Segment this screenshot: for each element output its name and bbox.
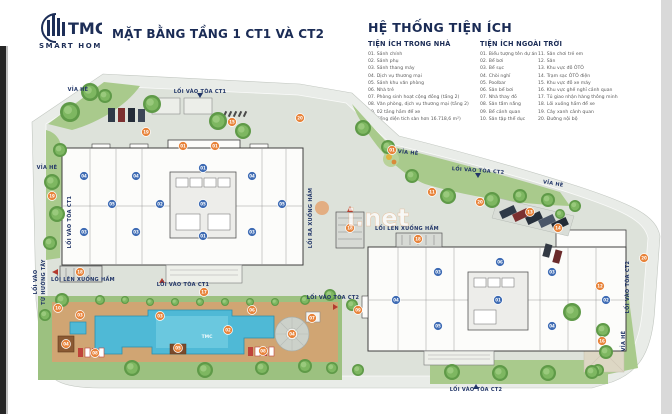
marker-number: 02	[603, 298, 609, 303]
marker-number: 09	[355, 308, 361, 313]
marker-number: 01	[200, 234, 206, 239]
marker-number: 20	[477, 200, 483, 205]
watermark-text: i.net	[347, 204, 409, 232]
tree	[555, 209, 565, 219]
tree	[298, 359, 312, 373]
plan-label: LỐI VÀO TÒA CT2	[307, 293, 360, 301]
marker-number: 08	[92, 351, 98, 356]
marker-number: 04	[63, 342, 69, 347]
marker-number: 20	[641, 256, 647, 261]
marker-number: 17	[201, 290, 207, 295]
plan-label: TỪ HƯỚNG TÂY	[40, 259, 47, 305]
tree	[146, 298, 154, 306]
marker-number: 05	[279, 202, 285, 207]
tree	[563, 303, 581, 321]
marker-number: 04	[133, 174, 139, 179]
plan-label: LỐI VÀO TÒA CT1	[174, 87, 227, 95]
marker-number: 04	[393, 298, 399, 303]
marker-number: 03	[77, 313, 83, 318]
plan-label: VỈA HÈ	[619, 330, 627, 351]
marker-number: 15	[229, 120, 235, 125]
tree	[585, 365, 599, 379]
tree	[197, 362, 213, 378]
tree	[444, 364, 460, 380]
marker-number: 04	[289, 332, 295, 337]
tree	[49, 206, 65, 222]
pool-shallow	[156, 316, 228, 348]
tree	[246, 298, 254, 306]
tree	[43, 236, 57, 250]
marker-number: 01	[389, 148, 395, 153]
plan-label: LỐI VÀO	[31, 270, 39, 295]
tree	[352, 364, 364, 376]
tree	[513, 189, 527, 203]
tree	[541, 193, 555, 207]
tree	[171, 298, 179, 306]
marker-number: 04	[549, 324, 555, 329]
marker-number: 03	[549, 270, 555, 275]
marker-number: 08	[260, 349, 266, 354]
tree	[124, 360, 140, 376]
tree	[221, 298, 229, 306]
tree	[98, 89, 112, 103]
marker-number: 11	[429, 190, 435, 195]
tree	[599, 345, 613, 359]
marker-number: 03	[81, 230, 87, 235]
marker-number: 01	[495, 298, 501, 303]
tree	[143, 95, 161, 113]
marker-number: 05	[435, 324, 441, 329]
tree	[196, 298, 204, 306]
building-ct1	[62, 140, 303, 283]
pool-logo-text: TMC	[202, 334, 214, 340]
tree	[492, 365, 508, 381]
marker-number: 03	[435, 270, 441, 275]
marker-number: 05	[109, 202, 115, 207]
plan-label: LỐI VÀO TÒA CT1	[65, 195, 73, 248]
marker-number: 02	[225, 328, 231, 333]
tree	[326, 362, 338, 374]
plan-label: LỐI VÀO TÒA CT1	[157, 280, 210, 288]
marker-number: 04	[81, 174, 87, 179]
tree	[60, 102, 80, 122]
marker-number: 05	[175, 346, 181, 351]
flowers	[386, 154, 392, 160]
tree	[39, 309, 51, 321]
marker-number: 13	[527, 210, 533, 215]
plan-label: VỈA HÈ	[68, 85, 89, 93]
marker-number: 12	[597, 284, 603, 289]
tree	[484, 192, 500, 208]
plan-label: VỈA HÈ	[37, 163, 58, 171]
marker-number: 01	[200, 166, 206, 171]
marker-number: 07	[309, 316, 315, 321]
tree	[405, 169, 419, 183]
tree	[44, 174, 60, 190]
tree	[121, 296, 129, 304]
marker-number: 01	[180, 144, 186, 149]
ct2-entrance-plaza	[424, 351, 494, 365]
marker-number: 20	[297, 116, 303, 121]
marker-number: 04	[249, 174, 255, 179]
tree	[569, 200, 581, 212]
marker-number: 18	[77, 270, 83, 275]
marker-number: 05	[200, 202, 206, 207]
plan-label: LỐI VÀO TÒA CT2	[450, 385, 503, 393]
marker-number: 03	[249, 230, 255, 235]
tree	[53, 143, 67, 157]
marker-number: 14	[555, 226, 561, 231]
flowers	[392, 160, 397, 165]
marker-number: 19	[143, 130, 149, 135]
tree	[440, 188, 456, 204]
tree	[95, 295, 105, 305]
tree	[596, 323, 610, 337]
marker-number: 03	[157, 314, 163, 319]
screenshot-stage: TMC SMART HOME MẶT BẰNG TẦNG 1 CT1 VÀ CT…	[0, 0, 672, 414]
marker-number: 03	[133, 230, 139, 235]
plan-label: LỐI VÀO TÒA CT2	[623, 260, 631, 313]
marker-number: 01	[212, 144, 218, 149]
marker-number: 10	[55, 306, 61, 311]
marker-number: 19	[49, 194, 55, 199]
marker-number: 02	[157, 202, 163, 207]
marker-number: 18	[415, 237, 421, 242]
jacuzzi-pool	[70, 322, 86, 334]
tree	[255, 361, 269, 375]
marker-number: 16	[599, 339, 605, 344]
tree	[235, 123, 251, 139]
tree	[271, 298, 279, 306]
tree	[209, 112, 227, 130]
ct1-entrance-plaza	[166, 265, 242, 283]
marker-number: 06	[249, 308, 255, 313]
site-plan: TMC	[0, 0, 672, 414]
tree	[540, 365, 556, 381]
tree	[355, 120, 371, 136]
marker-number: 06	[497, 260, 503, 265]
